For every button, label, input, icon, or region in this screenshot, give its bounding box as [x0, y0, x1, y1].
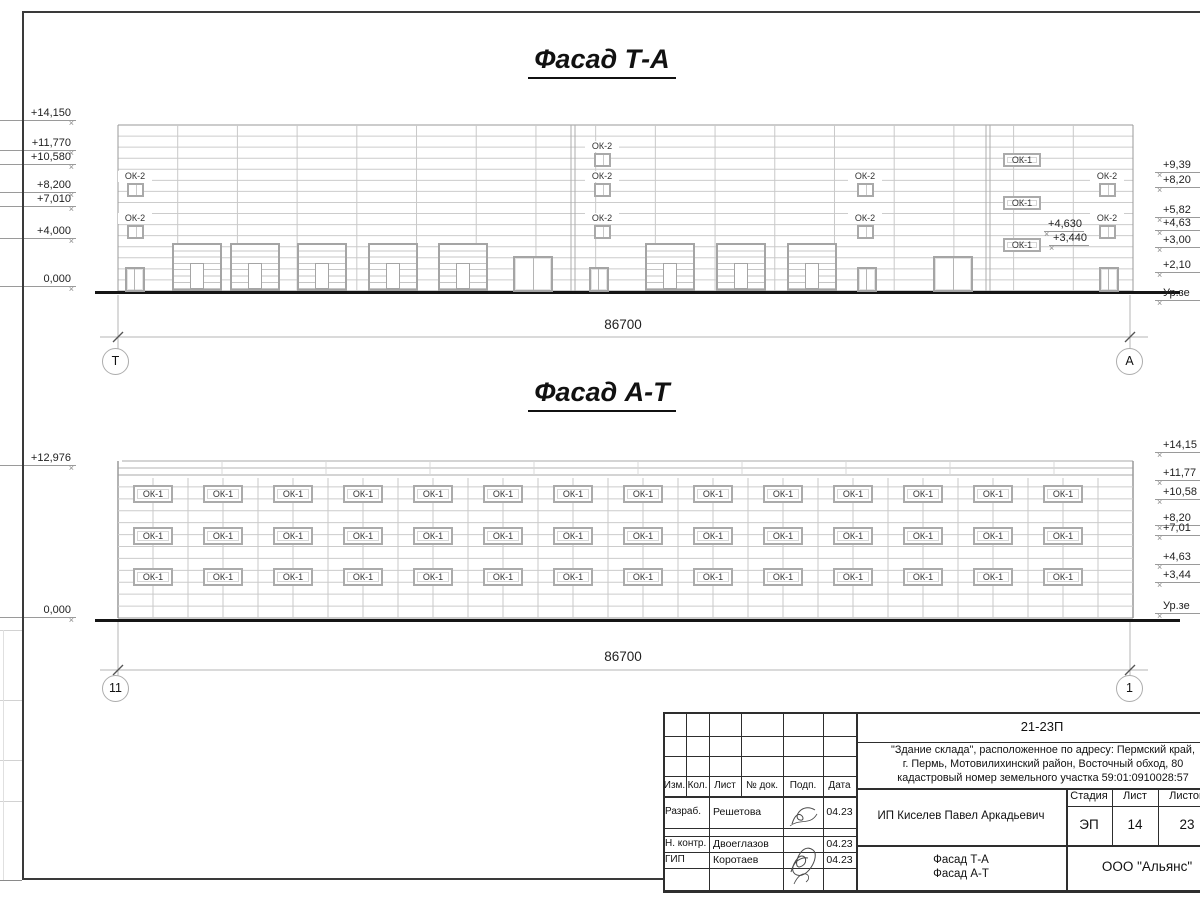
col-kol: Кол. [686, 776, 709, 796]
col-izm: Изм. [663, 776, 686, 796]
drawing-sheet: ОК-2ОК-2ОК-2ОК-2ОК-2ОК-2ОК-2ОК-2ОК-2ОК-1… [0, 0, 1200, 900]
frame-bottom [22, 878, 663, 880]
col-ndok: № док. [741, 776, 783, 796]
dimension-at: 86700 [553, 649, 693, 664]
role-developer: Разраб. [665, 796, 709, 828]
role-ncontrol: Н. контр. [665, 836, 709, 852]
facade-at-title: Фасад А-Т [432, 377, 772, 408]
frame-top [22, 11, 1200, 13]
date-ncontrol: 04.23 [823, 836, 856, 852]
annotation-layer: Фасад Т-А Фасад А-Т 86700 86700 Т А 11 1 [0, 0, 1200, 900]
sheets-total: 23 [1158, 806, 1200, 845]
stage-label: Стадия [1066, 788, 1112, 806]
sheet-title: Фасад Т-А Фасад А-Т [856, 845, 1066, 890]
sheets-label: Листов [1158, 788, 1200, 806]
title-block: Изм. Кол. Лист № док. Подп. Дата Разраб.… [663, 712, 1200, 893]
col-data: Дата [823, 776, 856, 796]
margin-line-vertical [3, 630, 4, 880]
role-gip: ГИП [665, 852, 709, 868]
name-ncontrol: Двоеглазов [710, 836, 782, 852]
company-name: ООО "Альянс" [1066, 845, 1200, 890]
date-gip: 04.23 [823, 852, 856, 868]
col-podp: Подп. [783, 776, 823, 796]
signatures [784, 796, 823, 890]
margin-line [0, 880, 22, 881]
name-gip: Коротаев [710, 852, 782, 868]
sheet-label: Лист [1112, 788, 1158, 806]
doc-number: 21-23П [856, 712, 1200, 742]
stage-value: ЭП [1066, 806, 1112, 845]
axis-bubble-1: 1 [1116, 675, 1143, 702]
project-description: "Здание склада", расположенное по адресу… [858, 742, 1200, 788]
dimension-ta: 86700 [553, 317, 693, 332]
facade-ta-title: Фасад Т-А [432, 44, 772, 75]
axis-bubble-a: А [1116, 348, 1143, 375]
axis-bubble-11: 11 [102, 675, 129, 702]
date-developer: 04.23 [823, 796, 856, 828]
sheet-number: 14 [1112, 806, 1158, 845]
name-developer: Решетова [710, 796, 782, 828]
col-list: Лист [709, 776, 741, 796]
client-name: ИП Киселев Павел Аркадьевич [856, 788, 1066, 845]
axis-bubble-t: Т [102, 348, 129, 375]
frame-left [22, 11, 24, 880]
